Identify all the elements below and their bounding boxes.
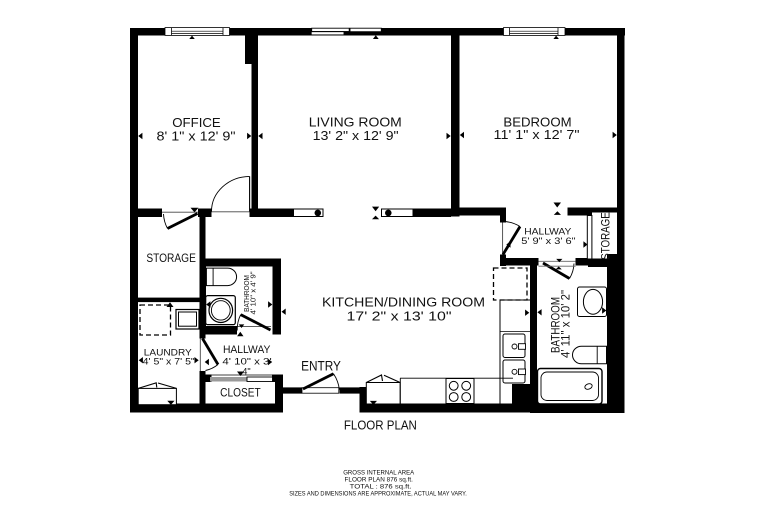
svg-text:13' 2" x 12' 9": 13' 2" x 12' 9" xyxy=(313,128,399,143)
svg-text:4' 11" x 10' 2": 4' 11" x 10' 2" xyxy=(561,290,573,358)
svg-text:4' 10" x 3': 4' 10" x 3' xyxy=(222,356,272,367)
svg-text:5' 9" x 3' 6": 5' 9" x 3' 6" xyxy=(521,236,575,246)
svg-text:STORAGE: STORAGE xyxy=(146,251,196,265)
svg-text:SIZES AND DIMENSIONS ARE APPRO: SIZES AND DIMENSIONS ARE APPROXIMATE, AC… xyxy=(289,491,467,498)
svg-text:8' 1" x 12' 9": 8' 1" x 12' 9" xyxy=(157,128,236,143)
svg-text:FLOOR PLAN: FLOOR PLAN xyxy=(344,417,417,432)
svg-text:CLOSET: CLOSET xyxy=(220,386,261,399)
svg-text:GROSS INTERNAL AREA: GROSS INTERNAL AREA xyxy=(343,470,414,477)
svg-text:4' 5" x 7' 5": 4' 5" x 7' 5" xyxy=(143,357,195,367)
svg-text:ENTRY: ENTRY xyxy=(301,359,341,375)
svg-text:HALLWAY: HALLWAY xyxy=(223,344,271,356)
svg-text:17' 2" x 13' 10": 17' 2" x 13' 10" xyxy=(347,309,452,324)
svg-text:4' 10" x 4' 9": 4' 10" x 4' 9" xyxy=(248,271,257,314)
svg-text:TOTAL : 876 sq.ft.: TOTAL : 876 sq.ft. xyxy=(350,483,412,490)
svg-text:11' 1" x 12' 7": 11' 1" x 12' 7" xyxy=(494,127,580,142)
svg-text:4": 4" xyxy=(242,367,250,377)
svg-text:STORAGE: STORAGE xyxy=(599,212,613,260)
svg-text:KITCHEN/DINING ROOM: KITCHEN/DINING ROOM xyxy=(322,294,485,309)
